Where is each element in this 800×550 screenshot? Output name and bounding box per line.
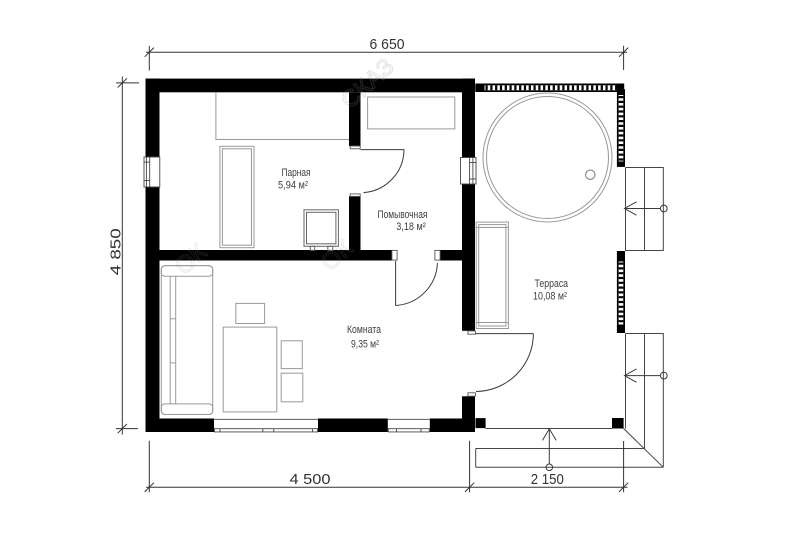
svg-text:10,08 м²: 10,08 м² [533,291,567,303]
svg-text:Комната: Комната [347,324,381,336]
svg-text:3,18 м²: 3,18 м² [396,221,426,233]
svg-text:5,94 м²: 5,94 м² [278,180,308,192]
svg-text:2 150: 2 150 [531,471,564,488]
svg-text:9,35 м²: 9,35 м² [351,339,379,351]
svg-text:4 500: 4 500 [290,471,331,488]
svg-text:Помывочная: Помывочная [378,209,428,221]
svg-text:6 650: 6 650 [370,36,405,53]
svg-text:Парная: Парная [282,167,311,179]
svg-text:Терраса: Терраса [535,278,569,290]
svg-text:4 850: 4 850 [108,228,125,275]
